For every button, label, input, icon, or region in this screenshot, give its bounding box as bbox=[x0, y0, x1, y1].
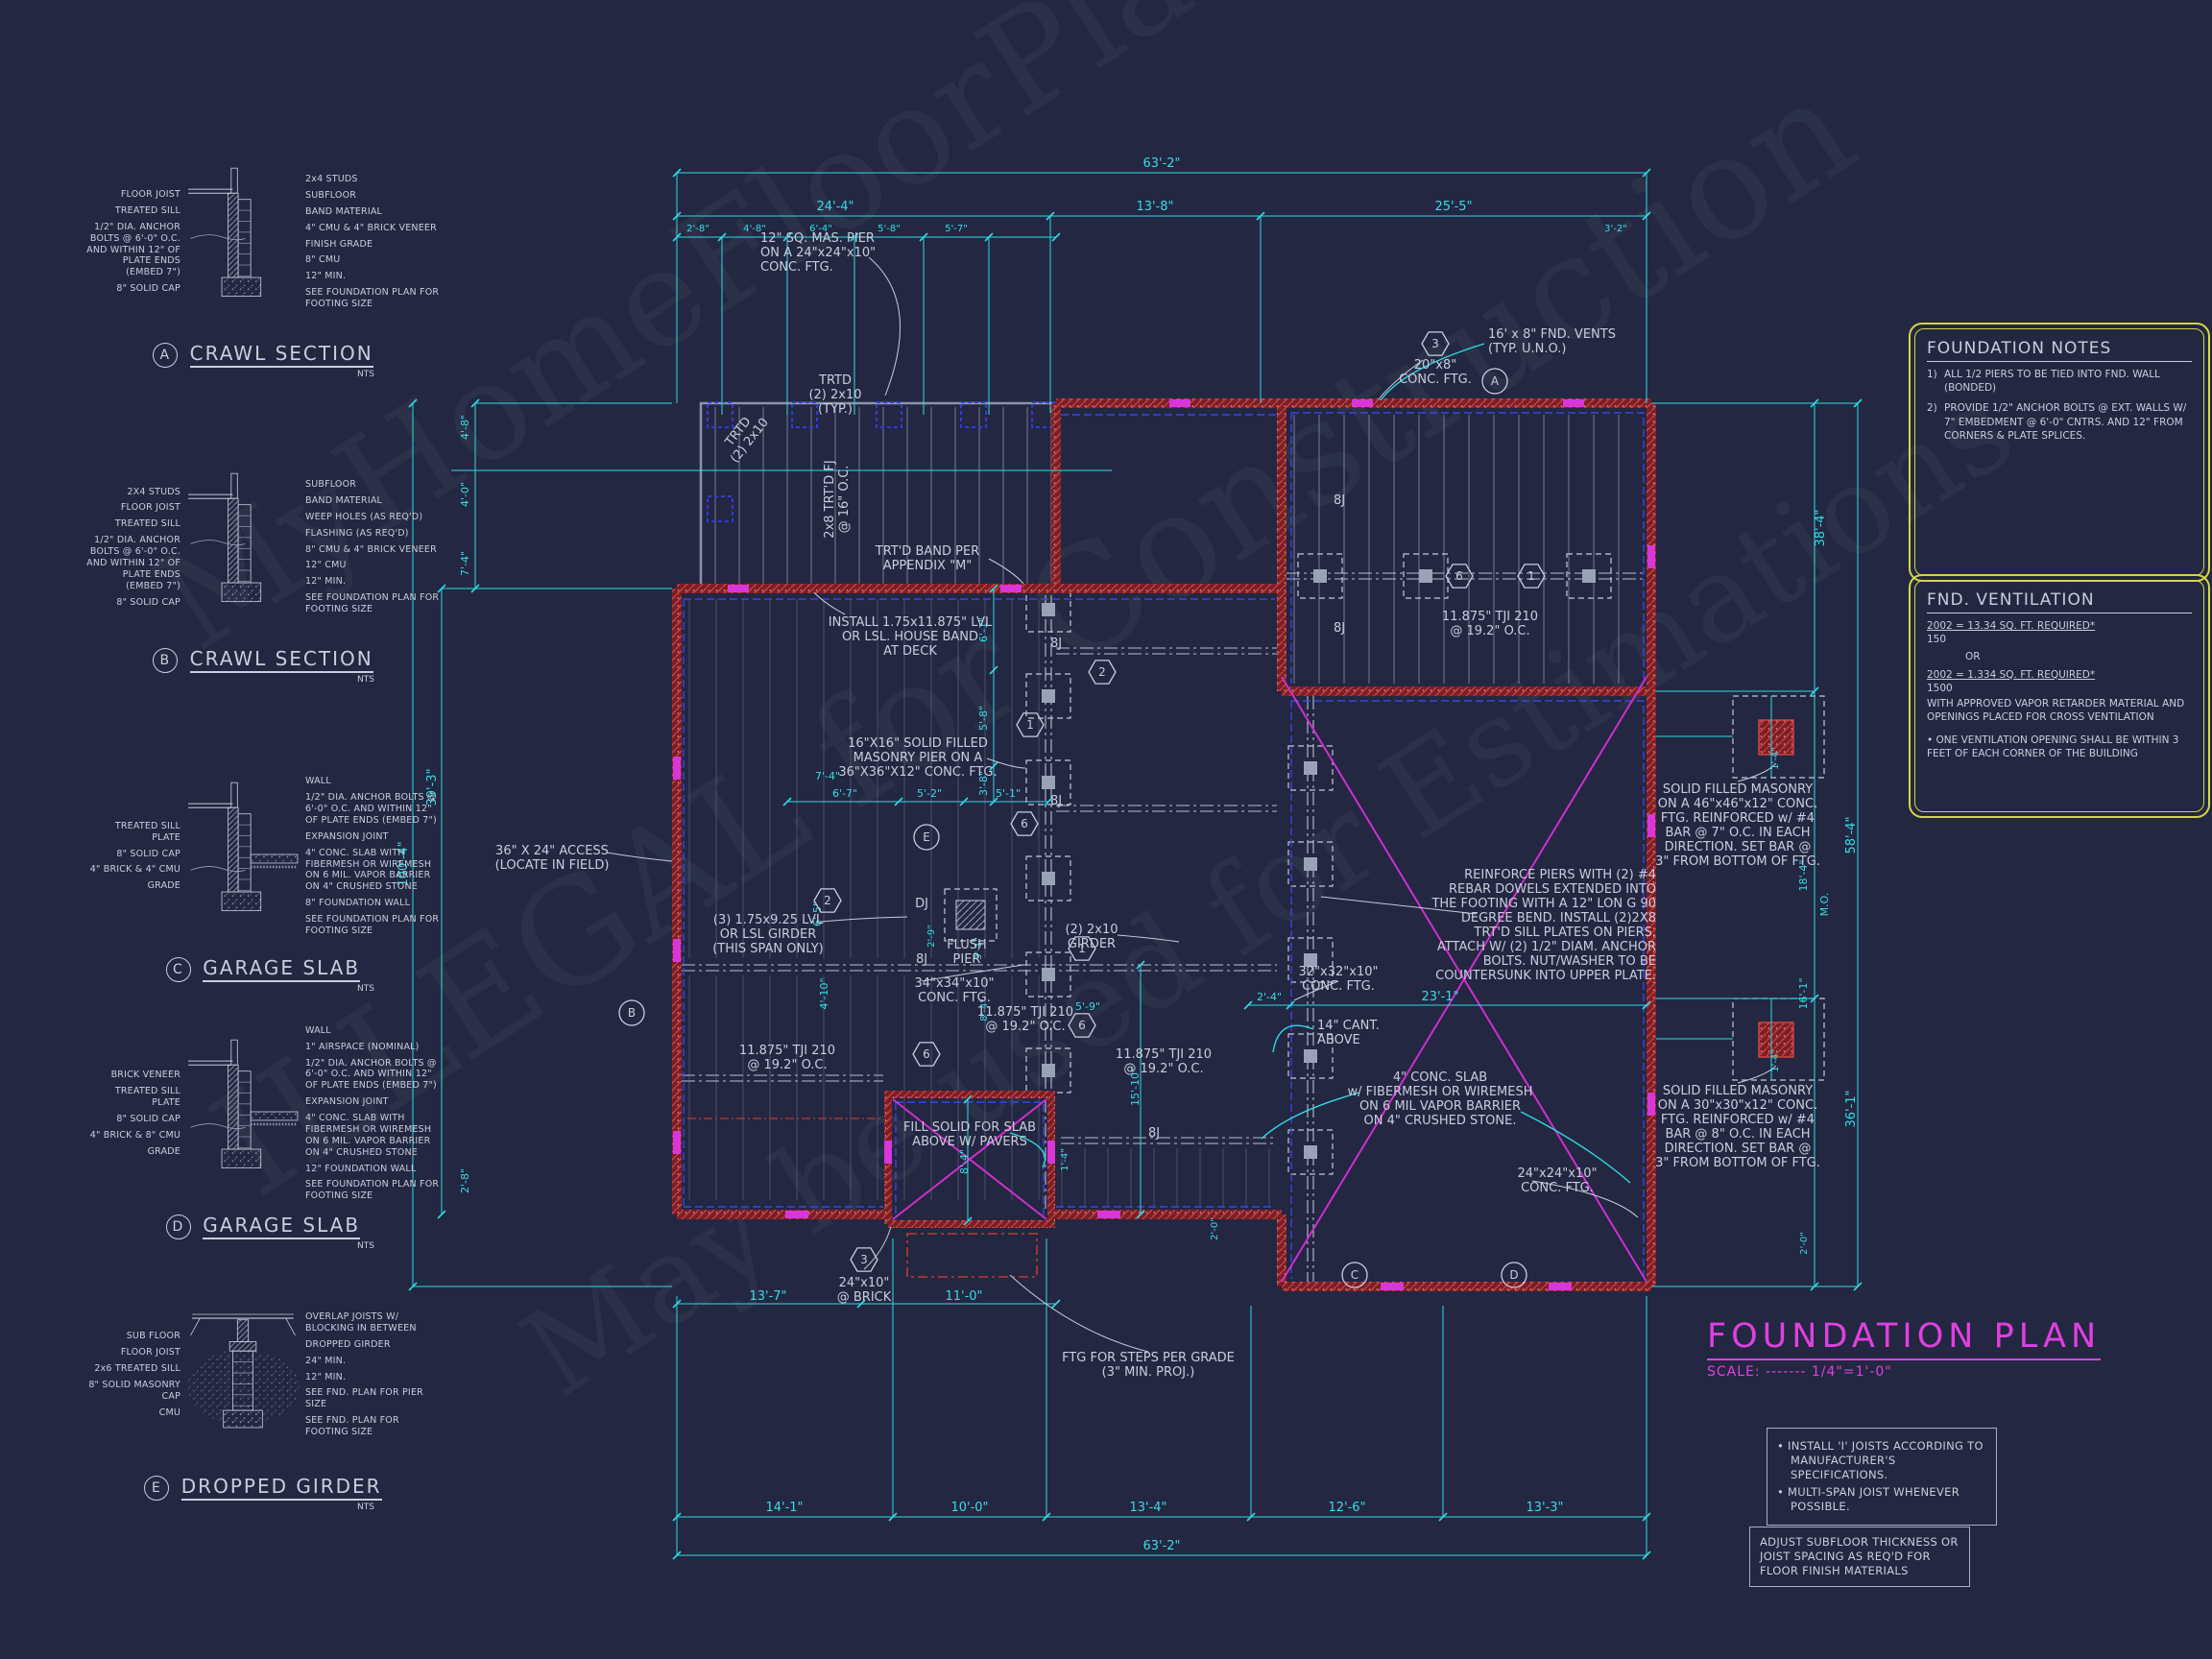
detail-label: 8" FOUNDATION WALL bbox=[305, 898, 442, 909]
plan-text: 63'-2" bbox=[1142, 1539, 1180, 1553]
vent-calc-1: 2002 = 13.34 SQ. FT. REQUIRED* 150 bbox=[1927, 619, 2192, 646]
plan-text: 12" SQ. MAS. PIERON A 24"x24"x10"CONC. F… bbox=[760, 231, 876, 275]
plan-text: 16"X16" SOLID FILLEDMASONRY PIER ON A36"… bbox=[838, 736, 997, 780]
plan-text: FTG FOR STEPS PER GRADE(3" MIN. PROJ.) bbox=[1062, 1351, 1235, 1380]
marker-label: 6 bbox=[923, 1047, 930, 1061]
plan-text: 6'-7" bbox=[832, 787, 857, 800]
plan-text: 5'-1" bbox=[996, 787, 1021, 800]
detail-title: D GARAGE SLAB bbox=[84, 1214, 442, 1239]
detail-label: SEE FOUNDATION PLAN FOR FOOTING SIZE bbox=[305, 592, 442, 615]
plan-text: 5'-2" bbox=[917, 787, 942, 800]
detail-label: 1" AIRSPACE (NOMINAL) bbox=[305, 1042, 442, 1053]
plan-text: 8J bbox=[1334, 493, 1345, 508]
detail-label: FLOOR JOIST bbox=[84, 502, 180, 514]
plan-text: 16'-1" bbox=[1797, 977, 1810, 1009]
marker-label: 6 bbox=[1021, 817, 1028, 830]
plan-text: 23'-1" bbox=[1421, 990, 1458, 1004]
plan-text: TRT'D BAND PERAPPENDIX "M" bbox=[875, 544, 979, 573]
marker-label: D bbox=[1509, 1268, 1518, 1282]
detail-label: OVERLAP JOISTS W/ BLOCKING IN BETWEEN bbox=[305, 1311, 442, 1334]
detail-label: EXPANSION JOINT bbox=[305, 1096, 442, 1108]
plan-text: 8J bbox=[1050, 637, 1062, 651]
plan-text: 20"x8"CONC. FTG. bbox=[1399, 358, 1472, 387]
detail-label: 2x4 STUDS bbox=[305, 174, 442, 185]
detail-label: 1/2" DIA. ANCHOR BOLTS @ 6'-0" O.C. AND … bbox=[84, 535, 180, 591]
plan-text: 8J bbox=[916, 952, 927, 967]
plan-text: 11'-0" bbox=[945, 1289, 982, 1304]
detail-section-c: TREATED SILL PLATE8" SOLID CAP4" BRICK &… bbox=[84, 758, 442, 994]
detail-label: 1/2" DIA. ANCHOR BOLTS @ 6'-0" O.C. AND … bbox=[84, 222, 180, 278]
detail-scale: NTS bbox=[84, 675, 442, 685]
detail-letter: D bbox=[166, 1214, 191, 1239]
detail-title: E DROPPED GIRDER bbox=[84, 1475, 442, 1501]
detail-label: BAND MATERIAL bbox=[305, 206, 442, 218]
plan-text: 10'-0" bbox=[950, 1501, 988, 1515]
marker-label: C bbox=[1351, 1268, 1358, 1282]
detail-letter: C bbox=[166, 957, 191, 982]
step-footing-dashed bbox=[907, 1234, 1037, 1277]
foundation-plan-drawing: 63'-2"24'-4"13'-8"25'-5"2'-8"4'-8"6'-4"5… bbox=[384, 96, 1882, 1575]
detail-label: 12" MIN. bbox=[305, 1372, 442, 1383]
vent-bullet: • ONE VENTILATION OPENING SHALL BE WITHI… bbox=[1927, 733, 2192, 760]
foundation-notes-title: FOUNDATION NOTES bbox=[1927, 339, 2192, 362]
plan-text: 1'-4" bbox=[1060, 1148, 1070, 1171]
plan-text: INSTALL 1.75x11.875" LVLOR LSL. HOUSE BA… bbox=[829, 615, 993, 659]
foundation-note-item: 2)PROVIDE 1/2" ANCHOR BOLTS @ EXT. WALLS… bbox=[1927, 401, 2192, 443]
detail-section-e: SUB FLOORFLOOR JOIST2x6 TREATED SILL8" S… bbox=[84, 1277, 442, 1512]
plan-text: 13'-8" bbox=[1136, 200, 1173, 214]
plan-text: REINFORCE PIERS WITH (2) #4REBAR DOWELS … bbox=[1431, 868, 1656, 983]
plan-text: 1'-4" bbox=[1770, 747, 1781, 770]
plan-text: 1'-4" bbox=[1770, 1049, 1781, 1072]
detail-label: GRADE bbox=[84, 880, 180, 892]
marker-label: 6 bbox=[1078, 1019, 1086, 1032]
plan-text: 7'-4" bbox=[815, 770, 840, 782]
detail-letter: A bbox=[153, 343, 178, 368]
plan-text: 8J bbox=[1334, 621, 1345, 636]
detail-scale: NTS bbox=[84, 370, 442, 379]
ventilation-title: FND. VENTILATION bbox=[1927, 590, 2192, 613]
marker-label: 1 bbox=[1026, 718, 1034, 732]
plan-text: 4" CONC. SLABw/ FIBERMESH OR WIREMESHON … bbox=[1347, 1070, 1532, 1128]
detail-section-a: FLOOR JOISTTREATED SILL1/2" DIA. ANCHOR … bbox=[84, 144, 442, 379]
detail-label: 4" BRICK & 8" CMU bbox=[84, 1130, 180, 1142]
plan-text: TRTD(2) 2x10(TYP.) bbox=[808, 373, 861, 417]
detail-label: TREATED SILL PLATE bbox=[84, 1086, 180, 1109]
plan-text: 5'-8" bbox=[977, 706, 990, 731]
detail-label: FLOOR JOIST bbox=[84, 189, 180, 201]
sheet-title: FOUNDATION PLAN bbox=[1707, 1317, 2101, 1360]
marker-label: B bbox=[628, 1006, 636, 1020]
detail-label: 8" CMU bbox=[305, 254, 442, 266]
plan-text: 8J bbox=[1148, 1126, 1160, 1141]
detail-section-b: 2X4 STUDSFLOOR JOISTTREATED SILL1/2" DIA… bbox=[84, 449, 442, 685]
plan-text: 4'-0" bbox=[459, 482, 471, 507]
plan-text: M.O. bbox=[1818, 893, 1831, 917]
detail-title: A CRAWL SECTION bbox=[84, 342, 442, 368]
marker-label: E bbox=[923, 830, 930, 844]
plan-text: 2'-0" bbox=[1799, 1232, 1810, 1255]
plan-text: 13'-4" bbox=[1129, 1501, 1166, 1515]
plan-text: 34"x34"x10"CONC. FTG. bbox=[915, 976, 995, 1005]
plan-text: 13'-7" bbox=[749, 1289, 786, 1304]
detail-label: TREATED SILL PLATE bbox=[84, 821, 180, 844]
detail-label: SUB FLOOR bbox=[84, 1331, 180, 1342]
detail-label: FLASHING (AS REQ'D) bbox=[305, 528, 442, 540]
detail-label: SEE FOUNDATION PLAN FOR FOOTING SIZE bbox=[305, 1179, 442, 1202]
plan-text: 5'-8" bbox=[878, 224, 901, 234]
plan-text: 24"x24"x10"CONC. FTG. bbox=[1518, 1166, 1598, 1195]
plan-text: 13'-3" bbox=[1526, 1501, 1563, 1515]
plan-text: 36'-1" bbox=[1844, 1090, 1859, 1127]
detail-label: SUBFLOOR bbox=[305, 190, 442, 202]
subfloor-note-box: ADJUST SUBFLOOR THICKNESS OR JOIST SPACI… bbox=[1749, 1527, 1970, 1587]
plan-text: 11.875" TJI 210@ 19.2" O.C. bbox=[1116, 1047, 1212, 1076]
detail-label: SEE FND. PLAN FOR FOOTING SIZE bbox=[305, 1415, 442, 1438]
plan-text: 25'-5" bbox=[1434, 200, 1472, 214]
detail-label: EXPANSION JOINT bbox=[305, 831, 442, 843]
detail-section-d: BRICK VENEERTREATED SILL PLATE8" SOLID C… bbox=[84, 1016, 442, 1251]
pier-squares bbox=[1026, 554, 1611, 1174]
plan-text: 2'-8" bbox=[459, 1168, 471, 1193]
leader-lines bbox=[607, 257, 1776, 1352]
detail-label: 1/2" DIA. ANCHOR BOLTS @ 6'-0" O.C. AND … bbox=[305, 1058, 442, 1093]
detail-label: 1/2" DIA. ANCHOR BOLTS @ 6'-0" O.C. AND … bbox=[305, 792, 442, 827]
detail-label: TREATED SILL bbox=[84, 205, 180, 217]
marker-label: 6 bbox=[1455, 569, 1463, 583]
detail-drawing bbox=[184, 144, 301, 340]
plan-text: 14'-1" bbox=[765, 1501, 803, 1515]
plan-text: 24"x10"@ BRICK bbox=[837, 1276, 892, 1305]
plan-text: 24'-4" bbox=[816, 200, 854, 214]
detail-label: 4" CONC. SLAB WITH FIBERMESH OR WIREMESH… bbox=[305, 848, 442, 894]
subfloor-note: ADJUST SUBFLOOR THICKNESS OR JOIST SPACI… bbox=[1760, 1535, 1959, 1577]
detail-title: C GARAGE SLAB bbox=[84, 956, 442, 982]
plan-text: 8'-4" bbox=[958, 1149, 971, 1174]
marker-label: 2 bbox=[1098, 665, 1106, 679]
plan-text: 7'-4" bbox=[459, 551, 471, 576]
detail-label: WEEP HOLES (AS REQ'D) bbox=[305, 512, 442, 523]
plan-text: 2'-9" bbox=[926, 925, 937, 948]
plan-text: 4'-10" bbox=[818, 977, 830, 1009]
detail-label: 2x6 TREATED SILL bbox=[84, 1363, 180, 1375]
title-block: FOUNDATION PLAN SCALE: ------- 1/4"=1'-0… bbox=[1707, 1317, 2101, 1380]
detail-label: 12" CMU bbox=[305, 560, 442, 571]
plan-text: 4'-8" bbox=[459, 415, 471, 440]
plan-text: FILL SOLID FOR SLABABOVE W/ PAVERS bbox=[903, 1120, 1036, 1149]
plan-text: 11.875" TJI 210@ 19.2" O.C. bbox=[739, 1044, 835, 1072]
joist-note-item: • INSTALL 'I' JOISTS ACCORDING TO MANUFA… bbox=[1777, 1439, 1986, 1482]
marker-label: 1 bbox=[1078, 942, 1086, 955]
detail-label: 8" SOLID CAP bbox=[84, 283, 180, 295]
plan-text: 11.875" TJI 210@ 19.2" O.C. bbox=[977, 1005, 1073, 1034]
detail-label: TREATED SILL bbox=[84, 518, 180, 530]
plan-text: 38'-4" bbox=[1814, 509, 1828, 546]
marker-label: 2 bbox=[824, 894, 831, 907]
sheet-scale: SCALE: ------- 1/4"=1'-0" bbox=[1707, 1364, 2101, 1380]
blueprint-canvas: MyHomeFloorPlans.com ILLEGAL for Constru… bbox=[0, 0, 2212, 1659]
plan-text: 63'-2" bbox=[1142, 156, 1180, 171]
detail-letter: E bbox=[144, 1476, 169, 1501]
marker-label: 3 bbox=[860, 1253, 868, 1266]
detail-label: 24" MIN. bbox=[305, 1356, 442, 1367]
detail-label: WALL bbox=[305, 1025, 442, 1037]
plan-text: 2x8 TRT'D FJ@ 16" O.C. bbox=[823, 460, 852, 538]
foundation-notes-box: FOUNDATION NOTES 1)ALL 1/2 PIERS TO BE T… bbox=[1909, 323, 2210, 582]
joist-note-item: • MULTI-SPAN JOIST WHENEVER POSSIBLE. bbox=[1777, 1485, 1986, 1514]
plan-text: SOLID FILLED MASONRYON A 30"x30"x12" CON… bbox=[1655, 1084, 1820, 1170]
detail-label: DROPPED GIRDER bbox=[305, 1339, 442, 1351]
joist-notes-list: • INSTALL 'I' JOISTS ACCORDING TO MANUFA… bbox=[1777, 1439, 1986, 1514]
detail-label: BRICK VENEER bbox=[84, 1070, 180, 1081]
plan-text: 12'-6" bbox=[1328, 1501, 1365, 1515]
plan-text: DJ bbox=[915, 897, 928, 911]
detail-scale: NTS bbox=[84, 1241, 442, 1251]
plan-text: 14" CANT.ABOVE bbox=[1317, 1019, 1380, 1047]
detail-drawing bbox=[184, 758, 301, 954]
detail-label: SEE FND. PLAN FOR PIER SIZE bbox=[305, 1387, 442, 1410]
flush-pier bbox=[945, 889, 997, 941]
detail-scale: NTS bbox=[84, 984, 442, 994]
plan-text: (3) 1.75x9.25 LVLOR LSL GIRDER(THIS SPAN… bbox=[712, 913, 824, 956]
detail-label: 8" SOLID CAP bbox=[84, 849, 180, 860]
detail-title: B CRAWL SECTION bbox=[84, 647, 442, 673]
plan-text: (2) 2x10GIRDER bbox=[1065, 923, 1118, 951]
detail-letter: B bbox=[153, 648, 178, 673]
plan-text: 5'-9" bbox=[1075, 1000, 1100, 1013]
detail-drawing bbox=[184, 449, 301, 645]
marker-label: 3 bbox=[1431, 337, 1439, 350]
plan-text: 36" X 24" ACCESS(LOCATE IN FIELD) bbox=[495, 844, 610, 873]
detail-label: 8" SOLID CAP bbox=[84, 1114, 180, 1125]
detail-label: 12" FOUNDATION WALL bbox=[305, 1164, 442, 1175]
plan-text: 2'-8" bbox=[686, 224, 709, 234]
detail-label: SUBFLOOR bbox=[305, 479, 442, 491]
detail-label: CMU bbox=[84, 1407, 180, 1419]
detail-scale: NTS bbox=[84, 1503, 442, 1512]
detail-label: GRADE bbox=[84, 1146, 180, 1158]
detail-label: 8" SOLID CAP bbox=[84, 597, 180, 609]
detail-label: WALL bbox=[305, 776, 442, 787]
plan-annotations: 63'-2"24'-4"13'-8"25'-5"2'-8"4'-8"6'-4"5… bbox=[397, 156, 1859, 1553]
plan-text: 2'-4" bbox=[1257, 991, 1282, 1003]
detail-label: 4" CONC. SLAB WITH FIBERMESH OR WIREMESH… bbox=[305, 1113, 442, 1159]
vent-or: OR bbox=[1965, 650, 2192, 663]
plan-markers: 21621663361ABECD bbox=[619, 332, 1545, 1287]
plan-text: 16' x 8" FND. VENTS(TYP. U.N.O.) bbox=[1488, 327, 1616, 356]
detail-label: SEE FOUNDATION PLAN FOR FOOTING SIZE bbox=[305, 914, 442, 937]
plan-text: 58'-4" bbox=[1844, 816, 1859, 854]
plan-text: SOLID FILLED MASONRYON A 46"x46"x12" CON… bbox=[1655, 782, 1820, 869]
plan-text: 5'-7" bbox=[945, 224, 968, 234]
detail-drawing bbox=[184, 1016, 301, 1212]
detail-label: 4" BRICK & 4" CMU bbox=[84, 864, 180, 876]
detail-label: 12" MIN. bbox=[305, 576, 442, 588]
vent-body: WITH APPROVED VAPOR RETARDER MATERIAL AN… bbox=[1927, 697, 2192, 724]
detail-label: 12" MIN. bbox=[305, 271, 442, 282]
joist-notes-box: • INSTALL 'I' JOISTS ACCORDING TO MANUFA… bbox=[1767, 1428, 1997, 1526]
detail-drawing bbox=[184, 1277, 301, 1473]
detail-label: 2X4 STUDS bbox=[84, 487, 180, 498]
foundation-notes-list: 1)ALL 1/2 PIERS TO BE TIED INTO FND. WAL… bbox=[1927, 368, 2192, 443]
detail-label: BAND MATERIAL bbox=[305, 495, 442, 507]
detail-label: FINISH GRADE bbox=[305, 239, 442, 251]
marker-label: 1 bbox=[1527, 569, 1535, 583]
detail-label: 8" SOLID MASONRY CAP bbox=[84, 1380, 180, 1403]
detail-label: FLOOR JOIST bbox=[84, 1347, 180, 1358]
detail-label: 8" CMU & 4" BRICK VENEER bbox=[305, 544, 442, 556]
ventilation-box: FND. VENTILATION 2002 = 13.34 SQ. FT. RE… bbox=[1909, 574, 2210, 818]
detail-label: SEE FOUNDATION PLAN FOR FOOTING SIZE bbox=[305, 287, 442, 310]
foundation-note-item: 1)ALL 1/2 PIERS TO BE TIED INTO FND. WAL… bbox=[1927, 368, 2192, 395]
detail-label: 4" CMU & 4" BRICK VENEER bbox=[305, 223, 442, 234]
plan-text: 8J bbox=[1050, 794, 1062, 808]
plan-text: 11.875" TJI 210@ 19.2" O.C. bbox=[1442, 610, 1538, 638]
vent-calc-2: 2002 = 1.334 SQ. FT. REQUIRED* 1500 bbox=[1927, 668, 2192, 695]
plan-text: 3'-2" bbox=[1604, 224, 1627, 234]
plan-text: 2'-0" bbox=[1210, 1217, 1220, 1240]
plan-text: 32"x32"x10"CONC. FTG. bbox=[1299, 965, 1379, 994]
marker-label: A bbox=[1491, 374, 1500, 388]
